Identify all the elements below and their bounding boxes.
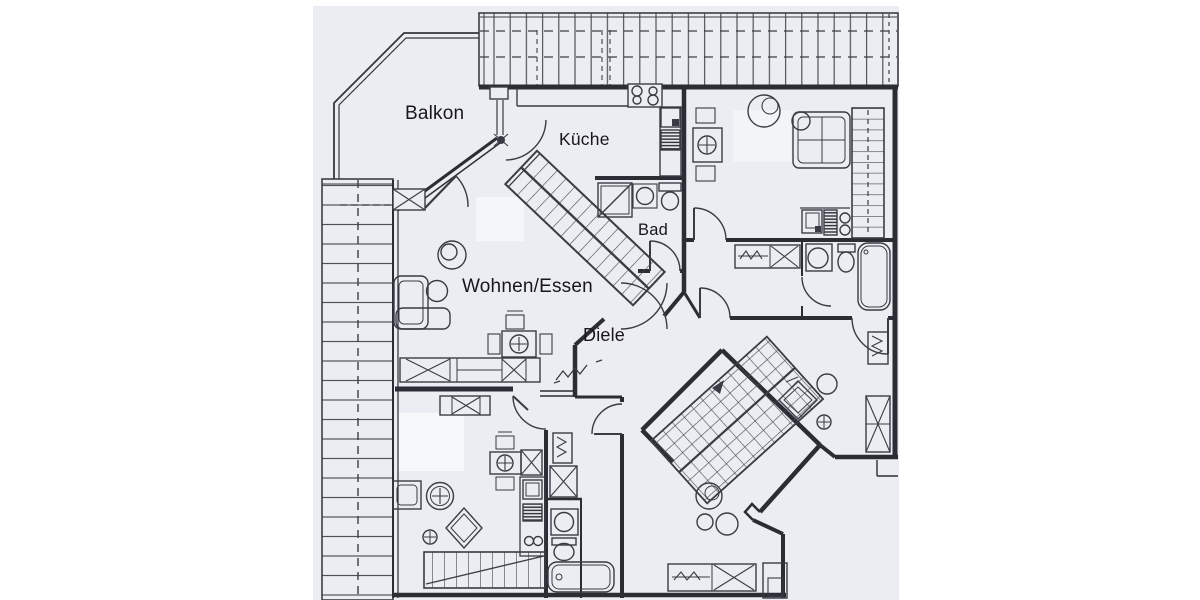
roof-hatch-top bbox=[479, 13, 898, 86]
floor-plan-drawing bbox=[0, 0, 1200, 600]
dishwasher-icon bbox=[661, 130, 680, 150]
room-label-bad: Bad bbox=[638, 221, 668, 240]
staircase-right-apartment bbox=[852, 108, 884, 238]
scanned-floor-plan-page: Balkon Küche Bad Wohnen/Essen Diele bbox=[0, 0, 1200, 600]
room-label-kueche: Küche bbox=[559, 129, 610, 150]
staircase-bottom-left bbox=[424, 552, 545, 588]
dishwasher-icon bbox=[824, 210, 837, 235]
scan-erasure-patch bbox=[733, 110, 791, 162]
roof-hatch-left bbox=[322, 179, 393, 600]
paper-background bbox=[313, 6, 899, 600]
dishwasher-icon bbox=[523, 504, 542, 521]
scan-erasure-patch bbox=[476, 197, 524, 241]
scan-erasure-patch bbox=[397, 413, 464, 471]
room-label-diele: Diele bbox=[583, 325, 625, 346]
room-label-balkon: Balkon bbox=[405, 103, 464, 125]
room-label-wohnen-essen: Wohnen/Essen bbox=[462, 276, 593, 298]
